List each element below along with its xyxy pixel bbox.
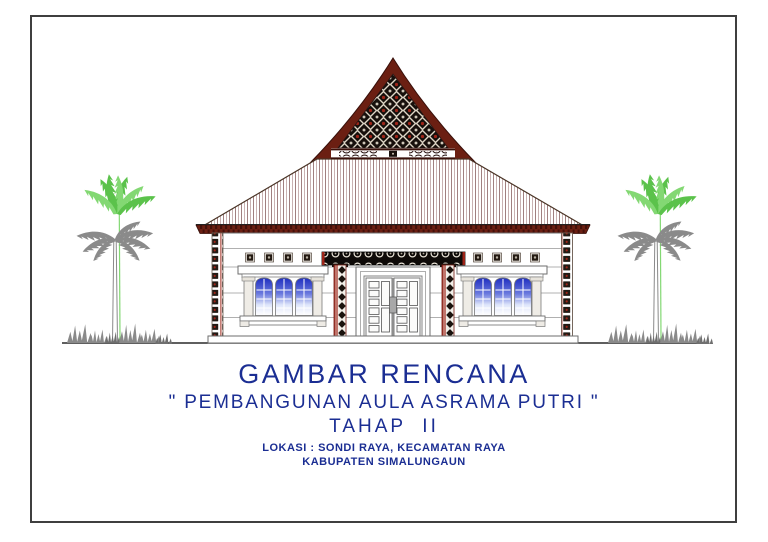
hip-roof [203, 159, 584, 226]
gorga-column-right [440, 264, 456, 337]
door-handle [390, 297, 397, 313]
gorga-column-left [332, 264, 348, 337]
double-door [356, 267, 430, 336]
eaves-fascia [196, 225, 590, 234]
project-phase: TAHAP II [0, 417, 768, 438]
location-line-1: LOKASI : SONDI RAYA, KECAMATAN RAYA [0, 442, 768, 456]
corner-pillar-left [212, 233, 223, 336]
location-line-2: KABUPATEN SIMALUNGAUN [0, 456, 768, 470]
project-name: " PEMBANGUNAN AULA ASRAMA PUTRI " [0, 393, 768, 414]
palm-tree-left [67, 174, 172, 344]
gable-lattice-ornament [338, 74, 448, 148]
window-left [238, 266, 328, 327]
drawing-title: GAMBAR RENCANA [0, 359, 768, 390]
gable-chain-band [331, 149, 455, 160]
building-elevation [196, 58, 590, 343]
carved-band [322, 252, 465, 265]
title-block: GAMBAR RENCANA " PEMBANGUNAN AULA ASRAMA… [0, 359, 768, 469]
palm-tree-right [608, 174, 713, 344]
base-platform [208, 336, 578, 343]
drawing-sheet: GAMBAR RENCANA " PEMBANGUNAN AULA ASRAMA… [0, 0, 768, 542]
window-right [457, 266, 547, 327]
corner-pillar-right [562, 233, 573, 336]
